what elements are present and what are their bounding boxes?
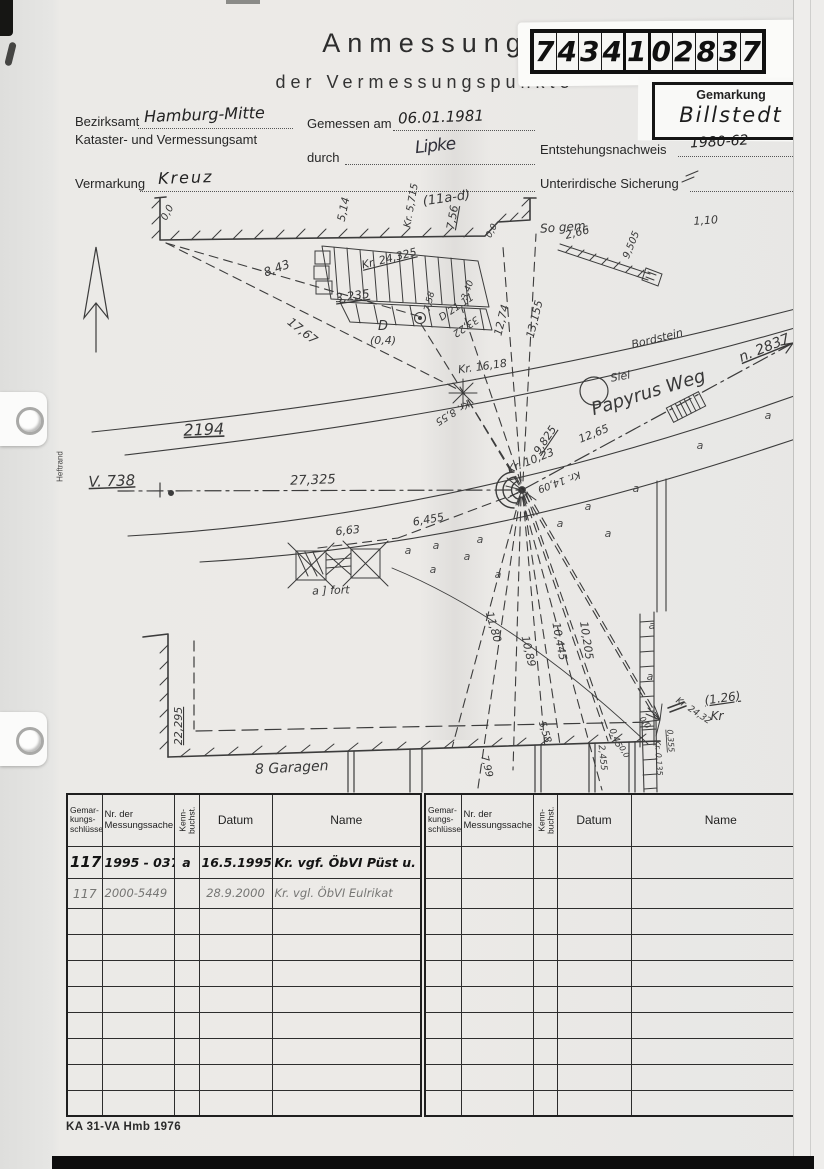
log-table-cell (272, 960, 421, 986)
sketch-label: 7,99 (478, 754, 494, 778)
sketch-label: 2,455 (596, 744, 609, 771)
log-table-cell: 2000-5449 (102, 878, 174, 908)
col-header-kennbuchst: Kenn- buchst. (174, 794, 199, 846)
log-table-cell (631, 878, 811, 908)
log-table-row (67, 908, 421, 934)
sketch-label: 3,235 (334, 287, 370, 306)
log-table-cell (557, 1012, 631, 1038)
sketch-label: 0,0 (617, 744, 631, 760)
log-table-cell (174, 1090, 199, 1116)
log-table-cell (631, 846, 811, 878)
log-table-cell (199, 960, 272, 986)
sketch-label: 13,155 (524, 299, 546, 340)
bezirksamt-value: Hamburg-Mitte (144, 103, 265, 126)
log-table-row (67, 960, 421, 986)
sketch-label: Kr (711, 709, 725, 723)
col-header-kennbuchst: Kenn- buchst. (533, 794, 557, 846)
sketch-label: 2,66 (564, 223, 591, 242)
sketch-label: D 21,11 (437, 292, 476, 323)
log-table-cell (174, 934, 199, 960)
amt-label: Kataster- und Vermessungsamt (75, 132, 257, 147)
log-table-cell (102, 934, 174, 960)
sketch-label: 0,45 (606, 727, 623, 750)
log-table-cell (102, 908, 174, 934)
scan-edge-bar (52, 1156, 814, 1169)
log-table-cell (461, 1012, 533, 1038)
log-table-cell (425, 878, 461, 908)
measurement-log-right: Gemar- kungs- schlüssel Nr. der Messungs… (424, 793, 812, 1117)
sketch-label: 9,505 (621, 230, 642, 261)
log-table-cell: a (174, 846, 199, 878)
log-table-cell (533, 1064, 557, 1090)
log-table-cell (272, 908, 421, 934)
log-table-cell (557, 934, 631, 960)
log-table-cell (272, 1090, 421, 1116)
sketch-a-mark: a (647, 670, 654, 683)
log-table-cell (557, 1038, 631, 1064)
log-table-cell (425, 908, 461, 934)
sketch-label: 5,14 (335, 196, 353, 223)
log-table-cell (102, 986, 174, 1012)
sketch-label: Siel (609, 368, 631, 384)
gemessen-label: Gemessen am (307, 116, 392, 131)
log-table-cell (67, 1038, 102, 1064)
log-table-cell (102, 960, 174, 986)
log-table-cell (557, 878, 631, 908)
log-table-cell (557, 960, 631, 986)
log-table-cell (199, 1064, 272, 1090)
doc-number-digit: 4 (602, 33, 627, 70)
sketch-label: Bordstein (630, 326, 684, 351)
log-table-cell (67, 1012, 102, 1038)
log-table-cell (272, 1064, 421, 1090)
scanned-survey-form: Anmessung der Vermessungspunkte 74341028… (0, 0, 824, 1169)
sketch-label: Kr. 8,55 (433, 397, 471, 427)
log-table-cell (533, 846, 557, 878)
sketch-label: 7,58 (423, 290, 438, 312)
log-table-cell: 117 (67, 846, 102, 878)
log-table-row (425, 908, 811, 934)
entstehung-label: Entstehungsnachweis (540, 142, 666, 157)
vermarkung-value: Kreuz (158, 167, 214, 188)
log-table-cell (425, 960, 461, 986)
log-table-cell (174, 878, 199, 908)
sketch-label: 3,40 (460, 279, 476, 302)
measurement-log-left: Gemar- kungs- schlüssel Nr. der Messungs… (66, 793, 422, 1117)
sketch-label: n. 2837 (737, 331, 793, 366)
sketch-label: Papyrus Weg (589, 365, 708, 420)
log-table-cell (102, 1090, 174, 1116)
sketch-label: So gem. (540, 218, 590, 235)
log-table-row (67, 1012, 421, 1038)
log-table-cell (67, 1090, 102, 1116)
col-header-gemarkungsschluessel: Gemar- kungs- schlüssel (67, 794, 102, 846)
sketch-label: 0,0 (638, 715, 653, 731)
log-table-cell (631, 934, 811, 960)
log-table-cell (461, 960, 533, 986)
doc-number-digit: 7 (741, 33, 763, 70)
doc-number-digit: 4 (557, 33, 580, 70)
sketch-label: 27,325 (290, 472, 336, 489)
sketch-label: 6,63 (335, 523, 361, 538)
log-table-row (425, 1038, 811, 1064)
sketch-a-mark: a (464, 550, 471, 563)
sicherung-label: Unterirdische Sicherung (540, 176, 679, 191)
log-table-cell (533, 934, 557, 960)
sketch-label: 1,10 (693, 213, 718, 228)
log-table-cell: 1995 - 037 (102, 846, 174, 878)
doc-number-digit: 1 (626, 33, 651, 70)
sketch-label: 9,825 (531, 423, 559, 456)
sketch-label: Kr. 16,18 (457, 357, 508, 377)
sketch-a-mark: a (605, 527, 612, 540)
sketch-label: V. 738 (88, 471, 135, 491)
log-table-row: 1172000-544928.9.2000Kr. vgl. ÖbVI Eulri… (67, 878, 421, 908)
log-table-row (425, 986, 811, 1012)
log-table-row (425, 878, 811, 908)
gemarkung-value: Billstedt (655, 103, 807, 127)
punch-hole (0, 712, 47, 766)
log-table-cell (174, 908, 199, 934)
doc-number-digit: 7 (534, 33, 557, 70)
log-table-cell (533, 1090, 557, 1116)
log-table-cell (272, 1012, 421, 1038)
log-table-cell (461, 846, 533, 878)
sketch-label: 22,295 (172, 707, 185, 746)
doc-number-digit: 0 (651, 33, 674, 70)
col-header-datum: Datum (199, 794, 272, 846)
durch-signature: Lipke (414, 134, 456, 158)
log-table-cell (102, 1038, 174, 1064)
sketch-a-mark: a (433, 539, 440, 552)
doc-number-digit: 2 (673, 33, 696, 70)
doc-number-digit: 8 (696, 33, 719, 70)
log-table-row (425, 934, 811, 960)
log-table-cell (199, 1038, 272, 1064)
sketch-label: 2194 (183, 419, 224, 439)
sketch-label: Kr. 24,32 (674, 696, 713, 727)
log-table-row (67, 1064, 421, 1090)
sketch-label: 0,0 (159, 203, 176, 222)
gemarkung-label: Gemarkung (655, 88, 807, 102)
sketch-label: Kr. 10,23 (505, 446, 556, 476)
sketch-label: (1.26) (704, 689, 742, 708)
log-table-cell (631, 1064, 811, 1090)
sketch-label: D (378, 319, 388, 334)
log-table-row (425, 1064, 811, 1090)
sketch-label: 11,80 (483, 610, 504, 644)
log-table-cell (557, 908, 631, 934)
sketch-a-mark: a (495, 568, 502, 581)
log-table-cell (102, 1064, 174, 1090)
sketch-label: 33,22 (450, 314, 480, 339)
log-table-row (425, 846, 811, 878)
log-table-cell (272, 1038, 421, 1064)
durch-label: durch (307, 150, 340, 165)
log-table-cell (67, 1064, 102, 1090)
log-table-cell (461, 986, 533, 1012)
sketch-label: 8,43 (262, 257, 292, 279)
log-table-cell (174, 986, 199, 1012)
col-header-gemarkungsschluessel: Gemar- kungs- schlüssel (425, 794, 461, 846)
document-number-box: 7434102837 (530, 29, 766, 74)
sketch-label: 10,445 (549, 621, 569, 661)
sketch-a-mark: a (633, 482, 640, 495)
col-header-name: Name (272, 794, 421, 846)
doc-number-digit: 3 (718, 33, 741, 70)
log-table-cell (461, 1038, 533, 1064)
sketch-label: Kr. 14,09 (536, 469, 582, 495)
col-header-name: Name (631, 794, 811, 846)
log-table-row (425, 1090, 811, 1116)
sketch-label: 12,74 (491, 303, 511, 337)
sketch-label: 0,0 (484, 222, 500, 240)
sketch-label: 0,355 (665, 729, 676, 752)
log-table-cell (425, 1064, 461, 1090)
log-table-cell (631, 908, 811, 934)
sketch-a-mark: a (405, 544, 412, 557)
sketch-label: 17,67 (285, 315, 321, 347)
log-table-cell (174, 1038, 199, 1064)
log-table-cell (174, 1012, 199, 1038)
log-table-cell (199, 1090, 272, 1116)
sketch-label: (0,4) (370, 334, 396, 347)
sketch-a-mark: a (585, 500, 592, 513)
sketch-label: 5,58 (536, 720, 553, 745)
log-table-row: 1171995 - 037a16.5.1995Kr. vgf. ÖbVI Püs… (67, 846, 421, 878)
log-table-cell (461, 1090, 533, 1116)
log-table-cell (425, 934, 461, 960)
log-table-cell (425, 1038, 461, 1064)
log-table-cell (533, 986, 557, 1012)
log-table-cell (461, 878, 533, 908)
log-table-cell (533, 878, 557, 908)
sketch-label: a ] fort (312, 583, 351, 597)
log-table-cell (557, 1064, 631, 1090)
sketch-label: 6,455 (412, 510, 445, 528)
log-table-cell (67, 986, 102, 1012)
log-table-cell (67, 934, 102, 960)
log-table-cell: Kr. vgl. ÖbVI Eulrikat (272, 878, 421, 908)
log-table-cell (631, 1090, 811, 1116)
sketch-a-marks: aaaaaaaaaaaaaa (405, 409, 772, 683)
sketch-label: 8 Garagen (255, 758, 329, 778)
sketch-a-mark: a (477, 533, 484, 546)
log-table-row (67, 1090, 421, 1116)
col-header-datum: Datum (557, 794, 631, 846)
log-table-cell (631, 1038, 811, 1064)
log-table-cell (174, 960, 199, 986)
log-table-row (425, 960, 811, 986)
log-table-cell: Kr. vgf. ÖbVI Püst u. Manack (272, 846, 421, 878)
log-table-cell (461, 908, 533, 934)
log-table-cell (533, 1038, 557, 1064)
log-table-cell (199, 986, 272, 1012)
punch-hole (0, 392, 47, 446)
log-table-cell (425, 846, 461, 878)
sketch-a-mark: a (430, 563, 437, 576)
scan-smudge (420, 120, 490, 740)
log-table-cell (557, 1090, 631, 1116)
log-table-cell (174, 1064, 199, 1090)
log-table-cell (631, 1012, 811, 1038)
log-table-cell (199, 908, 272, 934)
log-table-cell (425, 986, 461, 1012)
sketch-a-mark: a (557, 517, 564, 530)
log-table-row (67, 986, 421, 1012)
log-table-cell (67, 908, 102, 934)
sketch-a-mark: a (649, 619, 656, 632)
log-table-cell (272, 934, 421, 960)
gemessen-value: 06.01.1981 (398, 107, 484, 128)
log-table-cell (425, 1090, 461, 1116)
log-table-cell: 28.9.2000 (199, 878, 272, 908)
sketch-label: 10,89 (519, 634, 539, 668)
log-table-cell (461, 934, 533, 960)
log-table-cell (533, 908, 557, 934)
log-table-cell (199, 934, 272, 960)
log-table-row (67, 1038, 421, 1064)
log-table-cell (557, 846, 631, 878)
bezirksamt-label: Bezirksamt (75, 114, 139, 129)
log-table-row (67, 934, 421, 960)
log-table-cell (102, 1012, 174, 1038)
log-table-cell: 117 (67, 878, 102, 908)
scan-mark (4, 42, 17, 67)
page-edge (793, 0, 824, 1169)
scan-mark (0, 0, 13, 36)
scan-mark (226, 0, 260, 4)
sketch-label: 7,56 (444, 204, 461, 230)
log-table-cell (533, 1012, 557, 1038)
col-header-messungssache: Nr. der Messungssache (461, 794, 533, 846)
log-table-row (425, 1012, 811, 1038)
vermarkung-label: Vermarkung (75, 176, 145, 191)
sketch-label: 12,65 (577, 422, 611, 446)
log-table-cell (461, 1064, 533, 1090)
sketch-a-mark: a (765, 409, 772, 422)
log-table-cell (425, 1012, 461, 1038)
sketch-a-mark: a (697, 439, 704, 452)
col-header-messungssache: Nr. der Messungssache (102, 794, 174, 846)
form-id: KA 31-VA Hmb 1976 (66, 1121, 181, 1133)
log-table-cell (631, 960, 811, 986)
log-table-cell (199, 1012, 272, 1038)
heftrand-label: Heftrand (56, 437, 65, 497)
log-table-cell: 16.5.1995 (199, 846, 272, 878)
sketch-labels: (11a-d)0,05,14Kr. 5,7157,560,02,669,5051… (88, 183, 792, 779)
log-table-cell (67, 960, 102, 986)
log-table-cell (557, 986, 631, 1012)
doc-number-digit: 3 (579, 33, 602, 70)
sketch-label: Kr. 0,135 (653, 740, 664, 776)
log-table-cell (533, 960, 557, 986)
sketch-label: Kr. 24,325 (360, 245, 418, 271)
gemarkung-box: Gemarkung Billstedt (652, 82, 810, 140)
log-table-cell (631, 986, 811, 1012)
log-table-cell (272, 986, 421, 1012)
sketch-label: 10,205 (577, 620, 596, 660)
